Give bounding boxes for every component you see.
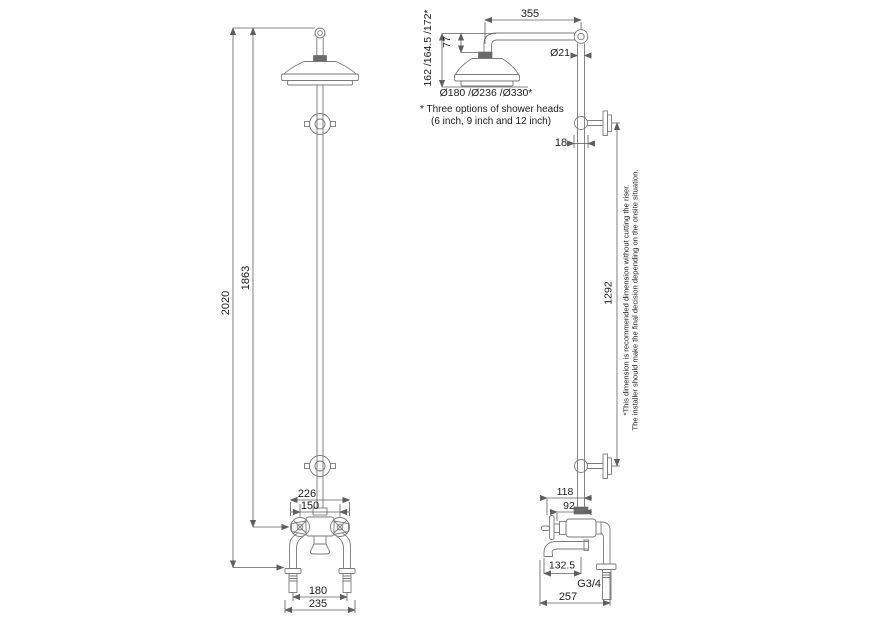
riser-note-line1: *This dimension is recommended dimension… xyxy=(622,185,631,416)
connection-thread-label: G3/4 xyxy=(577,578,601,590)
head-band xyxy=(461,81,513,86)
bracket-ring-inner xyxy=(315,461,325,471)
dim-inlet-offset-inner-label: 92 xyxy=(563,500,575,512)
dim-overall-depth-label: 257 xyxy=(559,591,577,603)
ext-lines-handle-span xyxy=(291,502,350,516)
bracket-pin-right xyxy=(331,464,336,469)
front-shower-arm xyxy=(314,28,327,62)
technical-drawing-svg: 2020 1863 226 150 180 235 xyxy=(0,0,891,628)
head-connector-nut xyxy=(479,52,493,59)
bracket-ring-inner xyxy=(315,119,325,129)
bracket-cap xyxy=(608,115,612,132)
leg-flange-right xyxy=(339,569,355,574)
head-options-note-line2: (6 inch, 9 inch and 12 inch) xyxy=(431,116,551,127)
front-view: 2020 1863 226 150 180 235 xyxy=(220,28,359,613)
side-shower-arm xyxy=(479,30,588,59)
leg-tail-left-thread xyxy=(289,576,297,581)
dim-handle-centers-label: 150 xyxy=(301,500,319,512)
dim-leg-centers-label: 180 xyxy=(309,585,327,597)
dim-inlet-offset-outer-label: 118 xyxy=(557,486,574,498)
front-riser-pipe xyxy=(317,85,323,508)
head-options-note-line1: * Three options of shower heads xyxy=(420,104,564,115)
bracket-stem xyxy=(588,464,604,469)
supply-elbow-pipe xyxy=(601,522,610,564)
leg-flange xyxy=(597,564,617,570)
bracket-plate xyxy=(603,454,608,479)
dim-base-width-label: 235 xyxy=(309,598,327,610)
front-legs xyxy=(285,534,355,593)
cross-handle-edge xyxy=(550,516,555,540)
arm-pipe xyxy=(497,33,575,40)
side-wall-bracket-lower xyxy=(575,454,612,479)
dim-riser-diameter-label: Ø21 xyxy=(550,47,570,59)
dim-bracket-offset-label: 18 xyxy=(555,137,567,149)
leg-tail-right-thread xyxy=(343,576,351,581)
spout-neck-front xyxy=(314,536,326,544)
bracket-pin-left xyxy=(305,464,310,469)
arm-end-ring-inner xyxy=(318,31,323,36)
riser-note-line2: The installer should make the final deci… xyxy=(631,170,640,431)
head-rim xyxy=(455,75,520,82)
dim-spout-reach-label: 132.5 xyxy=(549,560,575,572)
dim-handle-span-label: 226 xyxy=(298,488,316,500)
side-view: 355 162 /164.5 /172* 77 Ø21 Ø180 /Ø236 /… xyxy=(420,8,640,606)
valve-center-body xyxy=(306,517,334,536)
bracket-ring xyxy=(310,114,331,135)
dim-arm-reach-label: 355 xyxy=(521,8,539,20)
head-band xyxy=(288,81,353,86)
side-wall-bracket-upper xyxy=(575,111,612,136)
ext-lines-bracket-offset xyxy=(574,135,588,148)
side-riser-pipe xyxy=(578,44,585,508)
handle-stem xyxy=(554,524,560,533)
side-shower-head xyxy=(455,59,520,87)
head-rim xyxy=(282,74,359,81)
head-connector-nut xyxy=(314,56,327,62)
side-bath-spout xyxy=(544,540,589,557)
dim-arm-to-head-label: 77 xyxy=(441,36,453,48)
head-dome xyxy=(456,59,519,75)
bracket-plate xyxy=(603,111,608,136)
valve-body xyxy=(566,519,596,537)
dim-bracket-spacing-label: 1292 xyxy=(603,281,615,305)
bracket-pin-right xyxy=(331,122,336,127)
arm-ball-joint xyxy=(574,30,588,44)
bracket-pin-left xyxy=(305,122,310,127)
riser-union-nut xyxy=(574,507,588,514)
leg-flange-left xyxy=(285,569,301,574)
dim-valve-height-label: 1863 xyxy=(240,266,252,290)
head-dome xyxy=(284,62,356,75)
drawing-canvas: 2020 1863 226 150 180 235 xyxy=(0,0,891,628)
leg-left xyxy=(290,534,304,569)
front-wall-bracket-lower xyxy=(305,456,336,477)
arm-end-ring xyxy=(315,28,325,38)
front-shower-head xyxy=(282,62,359,86)
leg-right xyxy=(337,534,351,569)
cross-handle-pin xyxy=(542,526,550,531)
handle-escutcheon xyxy=(560,522,567,535)
outlet-port xyxy=(596,522,601,534)
arm-ball-joint-inner xyxy=(578,33,584,39)
dim-head-diameters-label: Ø180 /Ø236 /Ø330* xyxy=(440,87,533,99)
front-view-dimensions xyxy=(233,28,355,613)
dim-overall-height-label: 2020 xyxy=(220,291,232,315)
bracket-cap xyxy=(608,458,612,475)
spout-outline xyxy=(544,542,588,557)
bracket-hub xyxy=(575,460,588,473)
front-wall-bracket-upper xyxy=(305,114,336,135)
arm-pipe xyxy=(317,38,323,57)
valve-side-cones xyxy=(292,521,349,535)
dim-head-drop-label: 162 /164.5 /172* xyxy=(422,9,434,86)
bracket-ring xyxy=(310,456,331,477)
bracket-stem xyxy=(588,121,604,126)
spout-skirt-front xyxy=(310,544,329,554)
arm-elbow xyxy=(484,33,497,52)
bracket-hub xyxy=(575,117,588,130)
